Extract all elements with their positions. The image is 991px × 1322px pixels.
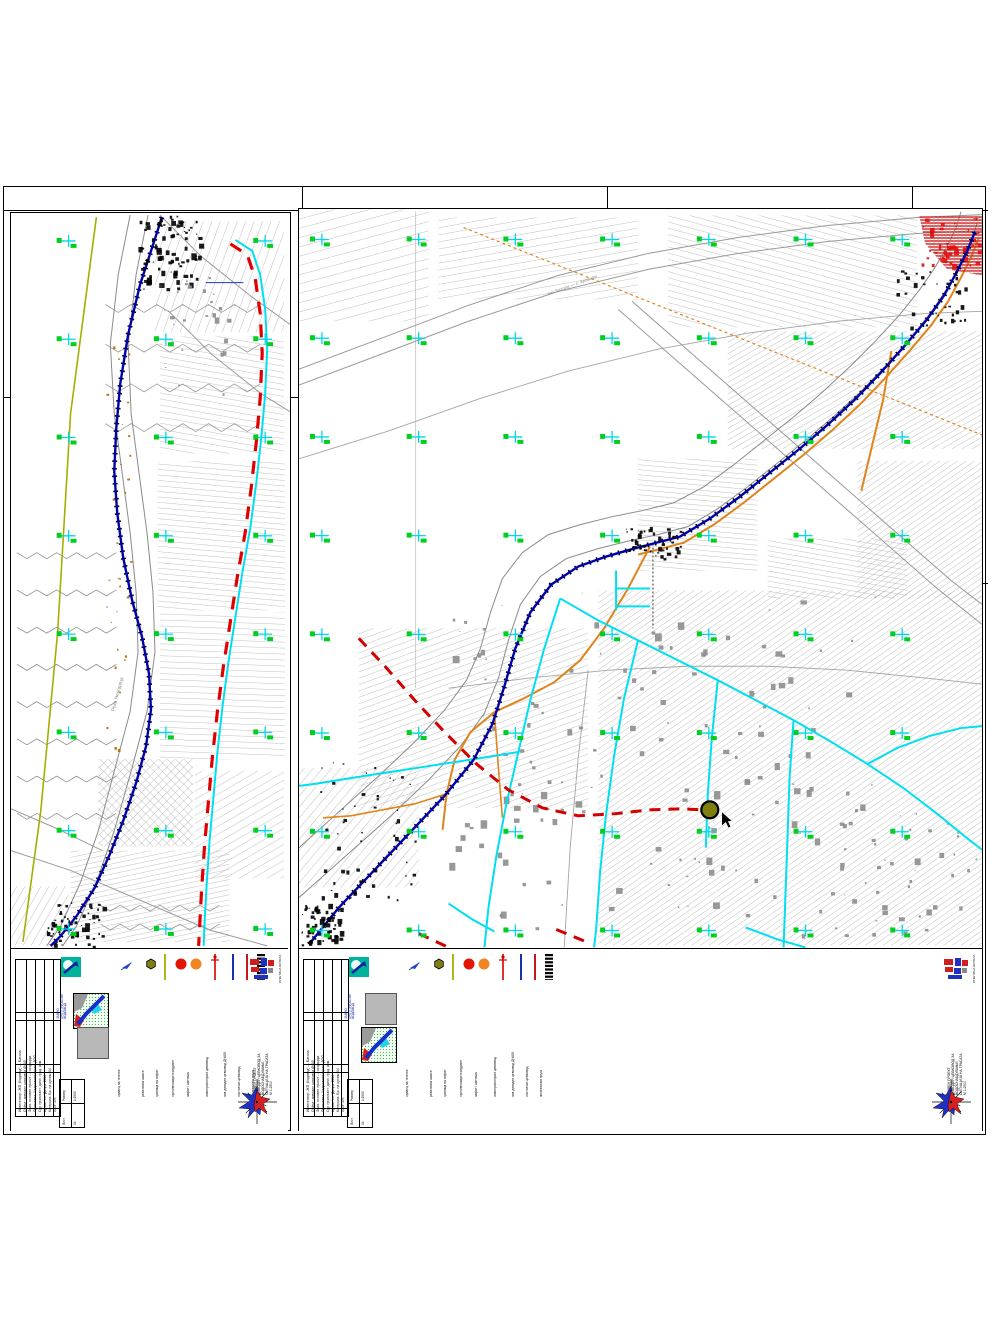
- building-block: [302, 944, 304, 946]
- parcel-hatch: [768, 539, 908, 599]
- building-block: [616, 888, 623, 894]
- building-block: [172, 253, 176, 256]
- building-block: [694, 858, 696, 860]
- building-block: [118, 749, 121, 752]
- building-block: [127, 596, 130, 598]
- building-block: [649, 529, 653, 532]
- building-block: [709, 870, 714, 876]
- building-block: [75, 944, 77, 946]
- building-block: [203, 289, 206, 293]
- building-block: [184, 227, 185, 228]
- building-block: [904, 272, 907, 274]
- building-block: [653, 532, 655, 535]
- building-block: [939, 247, 941, 250]
- building-block: [144, 280, 147, 283]
- building-block: [129, 353, 131, 355]
- building-block: [656, 847, 662, 852]
- building-block: [64, 916, 66, 918]
- building-block: [976, 858, 978, 860]
- building-block: [949, 252, 952, 255]
- building-block: [956, 291, 958, 293]
- building-block: [171, 272, 172, 273]
- fold-mark: [983, 583, 988, 584]
- building-block: [896, 293, 900, 297]
- building-block: [930, 230, 933, 234]
- building-block: [956, 310, 959, 314]
- building-block: [51, 923, 52, 924]
- building-block: [223, 351, 227, 355]
- building-block: [929, 271, 931, 273]
- building-block: [346, 870, 349, 874]
- building-block: [759, 725, 761, 727]
- legend-symbol-arrow-icon: [407, 954, 423, 980]
- building-block: [334, 893, 338, 898]
- building-block: [128, 435, 130, 437]
- building-block: [514, 818, 520, 822]
- building-block: [219, 307, 222, 310]
- building-block: [171, 219, 174, 221]
- building-block: [579, 726, 583, 729]
- building-block: [69, 920, 71, 922]
- building-block: [175, 257, 179, 261]
- building-block: [374, 807, 377, 809]
- building-block: [659, 645, 664, 649]
- building-block: [775, 763, 780, 770]
- fold-mark: [912, 187, 913, 210]
- building-block: [107, 394, 110, 396]
- survey-marker: [253, 923, 273, 936]
- legend-symbol-dot-icon: [188, 954, 204, 980]
- sheet-left: Река Неводица Инвеститор: ЈКП „Водовод“ …: [10, 212, 291, 1131]
- building-block: [449, 863, 455, 871]
- building-block: [312, 911, 315, 914]
- building-block: [910, 326, 914, 330]
- scale-cell: Лист: [62, 1118, 66, 1125]
- building-block: [366, 772, 367, 774]
- building-block: [631, 539, 633, 542]
- building-block: [185, 237, 188, 240]
- building-block: [186, 280, 188, 282]
- orchard-chevrons: [17, 627, 116, 633]
- building-block: [146, 222, 150, 225]
- building-block: [331, 890, 333, 891]
- legend-symbol-label: ревизиона шахта: [142, 985, 146, 1097]
- building-block: [925, 929, 929, 932]
- building-block: [184, 275, 189, 278]
- building-block: [82, 914, 85, 917]
- building-block: [771, 684, 776, 690]
- building-block: [711, 828, 716, 833]
- building-block: [336, 936, 338, 938]
- building-block: [922, 263, 925, 266]
- building-block: [644, 549, 647, 551]
- building-block: [846, 692, 852, 697]
- title-row: Контрола: Бр. на цртеж: 04: [336, 962, 340, 1112]
- legend-symbol-label: ревизиона шахта: [430, 985, 434, 1097]
- building-block: [593, 749, 596, 752]
- building-block: [667, 528, 671, 530]
- building-block: [196, 221, 198, 224]
- building-block: [594, 622, 599, 628]
- legend-symbol-dot-icon: [173, 954, 189, 980]
- building-block: [626, 531, 627, 532]
- building-block: [183, 319, 186, 321]
- org-logo-icon: [61, 957, 81, 977]
- building-block: [326, 923, 331, 927]
- map-right-canvas: пат Битола — с. Кравари: [299, 209, 982, 948]
- building-block: [923, 283, 925, 285]
- building-block: [909, 880, 912, 883]
- survey-marker: [503, 332, 523, 345]
- building-block: [190, 274, 193, 277]
- legend-symbol-label: правец на течење: [406, 985, 410, 1097]
- title-row: Инвеститор: ЈКП „Водовод“ — Битола: [18, 962, 22, 1112]
- building-block: [630, 528, 632, 530]
- building-block: [390, 777, 391, 779]
- scale-cell: Лист: [350, 1118, 354, 1125]
- legend-symbol-label: постоечки цевковод: [526, 985, 530, 1097]
- title-row: Одг. проектант: дипл. град. инж.: [326, 962, 330, 1112]
- building-block: [397, 819, 400, 823]
- building-block: [773, 895, 776, 899]
- building-block: [890, 862, 894, 865]
- building-block: [644, 530, 646, 532]
- building-block: [144, 262, 148, 265]
- building-block: [343, 763, 345, 764]
- building-block: [177, 287, 180, 290]
- title-row: Одг. проектант: дипл. град. инж.: [38, 962, 42, 1112]
- building-block: [498, 853, 502, 859]
- building-block: [792, 783, 794, 785]
- building-block: [949, 262, 952, 264]
- scale-cell: Размер: [350, 1090, 354, 1101]
- building-block: [955, 271, 958, 273]
- building-block: [161, 271, 165, 276]
- building-block: [393, 835, 395, 837]
- building-block: [944, 306, 946, 308]
- survey-marker: [310, 727, 330, 740]
- building-block: [484, 678, 486, 680]
- survey-marker: [600, 332, 620, 345]
- building-block: [181, 261, 185, 263]
- building-block: [162, 236, 165, 241]
- building-block: [481, 650, 485, 656]
- building-block: [165, 367, 166, 368]
- building-block: [973, 218, 975, 219]
- building-block: [534, 704, 539, 708]
- building-block: [140, 221, 143, 224]
- building-block: [64, 925, 67, 928]
- building-block: [655, 633, 662, 641]
- org-logo-icon: [349, 957, 369, 977]
- building-block: [362, 793, 366, 796]
- building-block: [951, 319, 954, 324]
- building-block: [98, 904, 101, 906]
- building-block: [957, 835, 959, 837]
- building-block: [809, 787, 813, 792]
- building-block: [149, 275, 152, 279]
- building-block: [374, 869, 377, 872]
- legend-symbol-label: зафат / каптажа: [187, 985, 191, 1097]
- building-block: [532, 766, 536, 769]
- building-block: [735, 756, 738, 759]
- legend-symbol-dot-icon: [476, 954, 492, 980]
- building-block: [978, 251, 982, 255]
- building-block: [872, 839, 876, 842]
- title-row: Фаза: основен проект — ситуација: [28, 962, 32, 1112]
- building-block: [933, 243, 934, 244]
- building-block: [155, 244, 157, 246]
- building-block: [941, 298, 942, 299]
- building-block: [52, 922, 56, 927]
- building-block: [59, 940, 62, 942]
- building-block: [678, 622, 684, 629]
- legend-symbol-label: нов доводен цевковод ДН400: [224, 985, 228, 1097]
- building-block: [514, 806, 521, 811]
- survey-marker: [57, 333, 77, 346]
- building-block: [188, 229, 190, 231]
- building-block: [914, 870, 915, 871]
- legend-left: Инвеститор: ЈКП „Водовод“ — БитолаОбјект…: [11, 948, 288, 1131]
- building-block: [912, 313, 916, 317]
- inset-blank-box: [77, 1027, 109, 1059]
- building-block: [185, 247, 188, 251]
- building-block: [333, 882, 335, 885]
- building-block: [361, 832, 363, 833]
- building-block: [840, 863, 844, 867]
- building-block: [332, 919, 334, 921]
- sheet-right: пат Битола — с. Кравари Инвеститор: ЈКП …: [298, 208, 983, 1131]
- legend-symbol-arrow-icon: [119, 954, 135, 980]
- building-block: [678, 906, 680, 908]
- building-block: [687, 906, 688, 907]
- building-block: [633, 546, 637, 549]
- building-block: [223, 393, 225, 395]
- building-block: [680, 531, 683, 533]
- building-block: [328, 931, 330, 934]
- building-block: [353, 891, 357, 896]
- building-block: [844, 848, 846, 850]
- building-block: [410, 784, 411, 785]
- building-block: [53, 933, 55, 934]
- building-block: [956, 277, 959, 280]
- map-line: [556, 929, 590, 943]
- building-block: [900, 815, 901, 816]
- building-block: [929, 250, 931, 252]
- building-block: [561, 904, 562, 906]
- map-line: [23, 217, 96, 942]
- building-block: [344, 819, 347, 822]
- building-block: [940, 319, 943, 322]
- building-block: [309, 908, 310, 909]
- building-block: [324, 869, 327, 873]
- building-block: [745, 780, 751, 785]
- building-block: [224, 339, 228, 344]
- building-block: [933, 905, 938, 909]
- building-block: [317, 940, 321, 945]
- building-block: [59, 931, 61, 933]
- building-block: [354, 806, 356, 807]
- building-block: [160, 219, 163, 223]
- building-block: [184, 231, 185, 232]
- building-block: [875, 920, 877, 921]
- survey-marker: [407, 924, 427, 937]
- survey-marker: [310, 628, 330, 641]
- building-block: [166, 250, 170, 255]
- building-block: [650, 551, 652, 553]
- building-block: [679, 859, 681, 862]
- org-logo-caption: ЈАВНО ПРЕТПРИЈАТИЕ ВОДОВОД: [345, 977, 356, 1019]
- survey-marker: [407, 431, 427, 444]
- building-block: [518, 783, 521, 786]
- building-block: [548, 780, 552, 784]
- building-block: [317, 905, 318, 906]
- building-block: [591, 787, 593, 788]
- building-block: [158, 268, 160, 271]
- building-block: [670, 646, 673, 650]
- building-block: [142, 248, 144, 250]
- building-block: [166, 288, 170, 291]
- building-block: [530, 761, 533, 764]
- building-block: [103, 907, 108, 911]
- building-block: [58, 932, 59, 933]
- building-block: [176, 234, 178, 236]
- legend-symbol-label: правец на течење: [118, 985, 122, 1097]
- building-block: [964, 246, 965, 247]
- municipal-stamp-icon: [942, 955, 970, 981]
- building-block: [176, 280, 179, 285]
- building-block: [658, 547, 662, 551]
- building-block: [882, 905, 887, 910]
- building-block: [322, 896, 325, 900]
- building-block: [74, 921, 77, 924]
- building-block: [366, 895, 370, 898]
- building-block: [161, 225, 163, 227]
- building-block: [196, 256, 197, 257]
- building-block: [958, 290, 961, 294]
- building-block: [114, 747, 117, 750]
- parcel-hatch: [439, 218, 638, 300]
- building-block: [871, 784, 872, 786]
- building-block: [322, 940, 324, 942]
- building-block: [806, 752, 811, 758]
- building-block: [846, 792, 849, 796]
- building-block: [320, 791, 322, 793]
- building-block: [819, 910, 822, 914]
- building-block: [600, 774, 603, 777]
- building-block: [186, 259, 189, 262]
- building-block: [81, 925, 82, 926]
- legend-symbol-tick-icon: [207, 954, 223, 980]
- building-block: [198, 237, 202, 240]
- building-block: [125, 655, 127, 657]
- building-block: [609, 907, 615, 911]
- building-block: [501, 912, 507, 919]
- building-block: [59, 904, 61, 906]
- building-block: [877, 866, 880, 869]
- building-block: [359, 880, 363, 883]
- building-block: [334, 941, 338, 945]
- building-block: [698, 861, 700, 863]
- building-block: [181, 349, 183, 351]
- building-block: [964, 319, 966, 322]
- building-block: [779, 683, 785, 688]
- building-block: [146, 281, 151, 286]
- building-block: [758, 732, 764, 737]
- survey-marker: [57, 825, 77, 838]
- title-row: Инвеститор: ЈКП „Водовод“ — Битола: [306, 962, 310, 1112]
- building-block: [668, 532, 671, 535]
- building-block: [843, 824, 847, 828]
- building-block: [667, 553, 671, 556]
- building-block: [527, 723, 530, 728]
- building-block: [67, 918, 69, 920]
- parcel-hatch: [668, 216, 917, 328]
- building-block: [944, 322, 946, 325]
- building-block: [925, 218, 929, 222]
- legend-symbol-label: нов доводен цевковод ДН400: [512, 985, 516, 1097]
- building-block: [638, 531, 639, 532]
- building-block: [334, 924, 336, 926]
- title-block: Инвеститор: ЈКП „Водовод“ — БитолаОбјект…: [303, 959, 349, 1117]
- building-block: [899, 917, 905, 921]
- building-block: [954, 223, 956, 224]
- building-block: [301, 932, 302, 933]
- building-block: [947, 246, 951, 250]
- building-block: [318, 934, 321, 936]
- title-row: Проектант: Хидроинженеринг ДОО: [33, 962, 37, 1112]
- legend-symbol-label: новопроектиран цевковод: [206, 985, 210, 1097]
- building-block: [172, 234, 176, 238]
- inset-location-map: [361, 1027, 397, 1063]
- building-block: [661, 700, 666, 705]
- building-block: [88, 913, 90, 914]
- building-block: [936, 283, 937, 284]
- building-block: [465, 823, 470, 827]
- building-block: [977, 232, 980, 234]
- building-block: [306, 924, 309, 928]
- building-block: [86, 936, 90, 940]
- building-block: [47, 931, 48, 932]
- building-block: [788, 677, 793, 684]
- building-block: [650, 863, 652, 865]
- building-block: [844, 894, 845, 895]
- building-block: [89, 904, 92, 908]
- building-block: [638, 533, 642, 537]
- map-right-wrap: пат Битола — с. Кравари: [299, 209, 982, 948]
- building-block: [855, 809, 858, 812]
- building-block: [170, 216, 172, 219]
- building-block: [94, 922, 95, 923]
- building-block: [655, 555, 656, 556]
- scale-box: Размер1:2500Лист04: [347, 1079, 373, 1128]
- building-block: [350, 897, 352, 898]
- building-block: [97, 908, 99, 910]
- building-block: [210, 301, 212, 303]
- building-block: [635, 540, 637, 543]
- building-block: [946, 283, 950, 285]
- building-block: [127, 402, 129, 404]
- survey-marker: [310, 332, 330, 345]
- building-block: [926, 324, 928, 326]
- building-block: [173, 324, 174, 325]
- building-block: [936, 313, 937, 315]
- building-block: [683, 799, 688, 802]
- building-block: [98, 933, 100, 935]
- building-block: [102, 935, 105, 938]
- building-block: [331, 917, 335, 920]
- building-block: [800, 833, 801, 834]
